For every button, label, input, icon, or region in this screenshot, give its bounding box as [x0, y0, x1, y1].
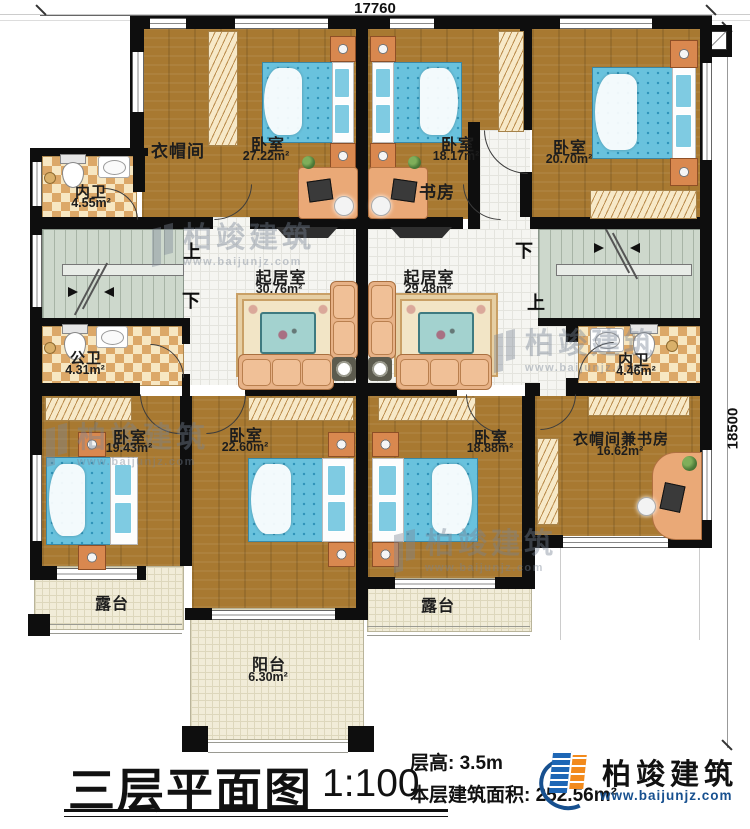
blanket	[432, 464, 472, 534]
wardrobe	[590, 190, 697, 219]
wall-h5-right	[572, 383, 712, 396]
wall-bedroom-tr-left	[520, 172, 532, 217]
nightstand	[370, 143, 396, 169]
blanket	[49, 464, 85, 536]
area-gongwei: 4.31m²	[65, 363, 105, 377]
cush	[371, 321, 393, 355]
pillow	[114, 502, 132, 534]
wall-bl-bottom	[137, 566, 146, 580]
label-terrace-right: 露台	[421, 592, 455, 616]
tv	[390, 227, 452, 238]
wall-br-cloak-divider	[522, 396, 535, 583]
nightstand	[370, 36, 396, 62]
pillow	[675, 74, 692, 108]
wall-bm-bottom	[185, 608, 212, 620]
coffee-table	[418, 312, 474, 354]
area-neiwei-r: 4.46m²	[616, 364, 656, 378]
wall-br-bottom	[362, 577, 395, 589]
wall-h5-right	[525, 383, 540, 396]
area-bedroom-tl: 27.22m²	[243, 149, 290, 163]
area-cloak-study: 16.62m²	[597, 444, 644, 458]
terrace-rail	[367, 626, 530, 636]
window	[702, 450, 712, 520]
coffee-table	[260, 312, 316, 354]
area-neiwei-tl: 4.55m²	[71, 196, 111, 210]
chair	[371, 196, 391, 216]
stair-right-arrow	[630, 243, 640, 253]
window	[132, 52, 144, 112]
stair-left-arrow	[68, 287, 78, 297]
decor: { "dimensions": { "top": "17760", "right…	[0, 0, 750, 829]
cush	[430, 359, 459, 386]
wall-h4-left	[30, 318, 190, 326]
floor-drain	[44, 342, 56, 354]
pillar	[182, 726, 208, 752]
nightstand	[328, 542, 355, 567]
cush	[400, 359, 429, 386]
pillow	[378, 465, 397, 496]
window	[32, 162, 42, 206]
cush	[333, 285, 355, 319]
sofa	[368, 281, 396, 359]
wardrobe	[208, 31, 238, 146]
pillow	[675, 114, 692, 148]
nightstand	[330, 36, 356, 62]
nightstand	[670, 158, 698, 186]
chair	[334, 196, 354, 216]
window	[32, 455, 42, 541]
title-underline-thin	[64, 816, 448, 817]
stair-left-down-label: 下	[182, 287, 200, 313]
terrace-rail	[34, 624, 182, 634]
wardrobe	[498, 31, 524, 132]
window	[32, 235, 42, 307]
oval	[101, 330, 124, 345]
pillar	[28, 614, 50, 636]
cush	[460, 359, 489, 386]
cush	[272, 359, 301, 386]
floor-plan: 17760 18500	[0, 0, 750, 829]
sink	[96, 326, 128, 348]
blanket	[251, 464, 291, 534]
label-shufang: 书房	[419, 178, 455, 203]
area-bedroom-tm: 18.17m²	[433, 149, 480, 163]
sofa	[330, 281, 358, 359]
blanket	[595, 74, 637, 150]
area-living-right: 29.48m²	[405, 282, 452, 296]
tv	[276, 227, 338, 238]
side-table	[368, 357, 392, 381]
oval	[103, 160, 126, 175]
cush	[371, 285, 393, 319]
dim-right-label: 18500	[724, 408, 741, 450]
stair-left-rail	[62, 264, 184, 276]
wall-neiwei-r-left	[566, 326, 578, 342]
wall-h5-left	[30, 383, 140, 396]
wardrobe	[248, 397, 354, 421]
window	[395, 579, 495, 589]
wall-cloak-bottom	[527, 535, 563, 548]
pillow	[334, 104, 350, 134]
dim-top-label: 17760	[354, 0, 396, 17]
stair-right-up-label: 上	[527, 289, 545, 315]
nightstand	[330, 143, 356, 169]
label-terrace-left: 露台	[95, 590, 129, 614]
plant-icon	[408, 156, 421, 169]
nightstand	[372, 432, 399, 457]
plant-icon	[682, 456, 697, 471]
wall-gongwei-right	[182, 326, 190, 344]
cush	[302, 359, 331, 386]
computer-monitor	[391, 178, 418, 202]
window	[212, 610, 335, 620]
plant-icon	[302, 156, 315, 169]
stair-right-arrow	[594, 243, 604, 253]
wardrobe	[588, 396, 690, 416]
pillar	[348, 726, 374, 752]
nightstand	[78, 545, 106, 570]
pillow	[375, 68, 391, 98]
window	[563, 537, 668, 548]
window	[150, 18, 186, 29]
wall-neiwei-right	[133, 148, 145, 192]
wardrobe	[45, 397, 132, 421]
title-underline	[64, 809, 448, 812]
sofa	[396, 354, 492, 390]
sink	[98, 156, 130, 178]
blanket	[264, 68, 302, 135]
floor-drain	[666, 340, 678, 352]
pillow	[114, 464, 132, 496]
area-bedroom-bl: 19.43m²	[106, 441, 153, 455]
side-table	[332, 357, 356, 381]
wall-neiwei-top	[30, 148, 148, 156]
brand-name: 柏竣建筑	[602, 751, 738, 793]
nightstand	[328, 432, 355, 457]
pillow	[334, 68, 350, 98]
window	[235, 18, 328, 29]
window	[560, 18, 652, 29]
area-bedroom-bm: 22.60m²	[222, 440, 269, 454]
label-yimaojian: 衣帽间	[151, 137, 205, 162]
wall-bl-bm-divider	[180, 396, 192, 566]
cush	[333, 321, 355, 355]
grid-line	[699, 548, 700, 640]
area-balcony: 6.30m²	[248, 670, 288, 684]
wardrobe	[378, 397, 476, 421]
window	[390, 18, 434, 29]
stair-left-arrow	[104, 287, 114, 297]
pillow	[378, 501, 397, 532]
wall-bl-bottom	[30, 566, 57, 580]
brand-website: www.baijunjz.com	[600, 788, 733, 803]
nightstand	[78, 432, 106, 457]
pillow	[327, 501, 346, 532]
grid-line	[560, 548, 561, 640]
cush	[242, 359, 271, 386]
sofa	[238, 354, 334, 390]
area-bedroom-tr: 20.70m²	[546, 152, 593, 166]
chair	[637, 497, 656, 516]
wall-bm-bottom	[335, 608, 368, 620]
wardrobe	[537, 438, 559, 525]
nightstand	[372, 542, 399, 567]
stair-right-down-label: 下	[515, 237, 533, 263]
wall-br-bottom	[495, 577, 535, 589]
computer-monitor	[307, 178, 334, 202]
floor-height-text: 层高: 3.5m	[410, 748, 503, 775]
blanket	[420, 68, 458, 135]
pillow	[375, 104, 391, 134]
area-bedroom-br: 18.88m²	[467, 441, 514, 455]
window	[702, 63, 712, 160]
wall-h4-right	[538, 318, 712, 326]
floor-drain	[44, 172, 56, 184]
nightstand	[670, 40, 698, 68]
dim-line-right	[727, 28, 728, 748]
stair-left-up-label: 上	[183, 238, 201, 264]
pillow	[327, 465, 346, 496]
drawing-scale: 1:100	[322, 762, 420, 806]
area-living-left: 30.76m²	[256, 282, 303, 296]
brand-logo-icon	[538, 746, 596, 804]
